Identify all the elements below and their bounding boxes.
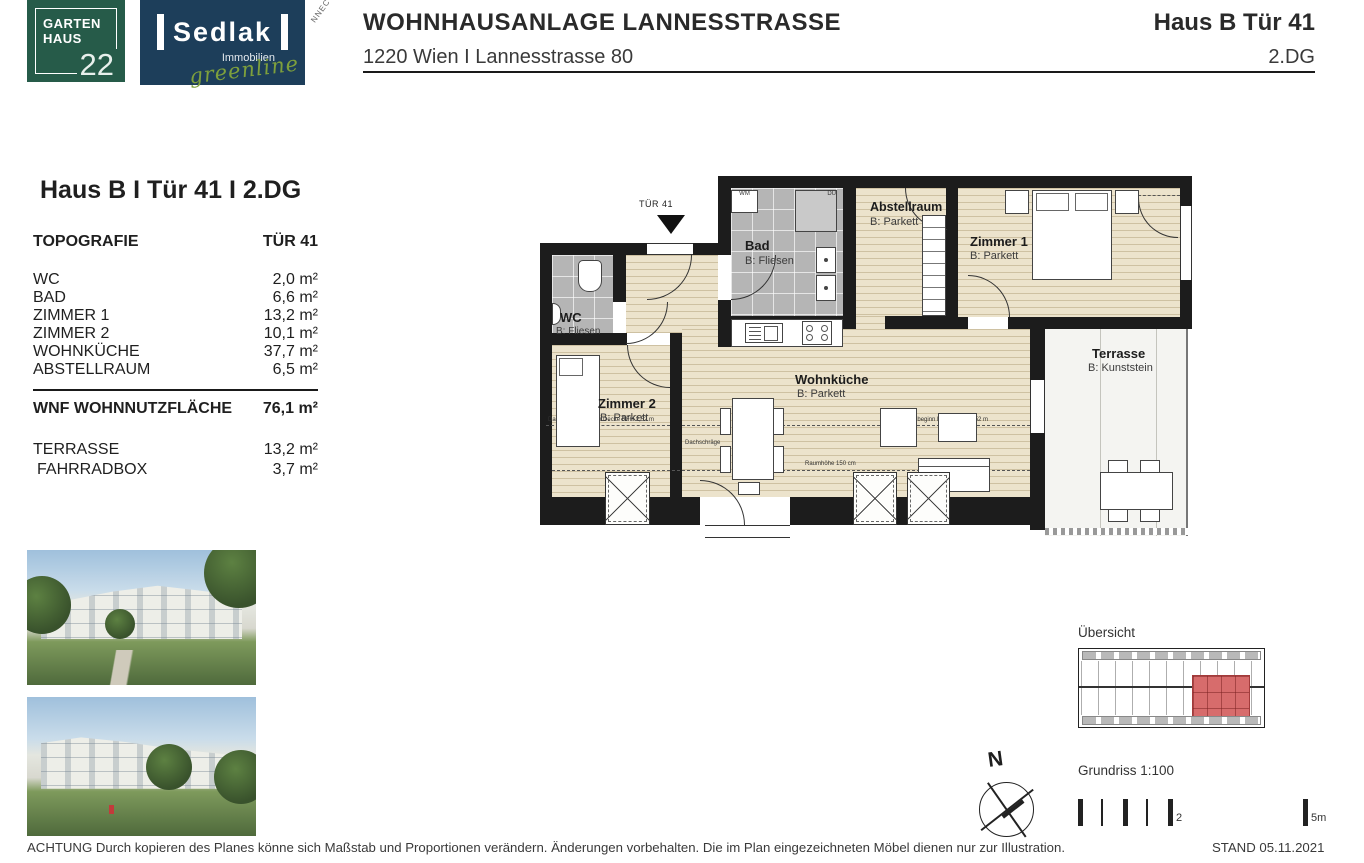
entry-door-sill xyxy=(647,243,693,255)
chair xyxy=(720,408,731,435)
wc-door-arc xyxy=(626,302,668,344)
stand-date: STAND 05.11.2021 xyxy=(1212,840,1324,855)
chair xyxy=(738,482,760,495)
terrace-glass-door xyxy=(1030,380,1045,433)
chair xyxy=(773,446,784,473)
photo-tree xyxy=(146,744,192,790)
panel-heading: Haus B I Tür 41 I 2.DG xyxy=(40,176,301,205)
scale-tick-label: 5m xyxy=(1311,812,1326,824)
annotation: Dachschräge xyxy=(685,440,720,446)
room-label: ABSTELLRAUM xyxy=(33,361,150,379)
extra-area: 3,7 m² xyxy=(273,460,318,480)
room-label: BAD xyxy=(33,289,66,307)
roof-slope-line xyxy=(1138,195,1180,196)
skylight-window xyxy=(605,472,650,525)
corridor-floor xyxy=(856,316,885,329)
dining-table xyxy=(732,398,774,480)
total-label: WNF WOHNNUTZFLÄCHE xyxy=(33,400,232,418)
room-label: ZIMMER 2 xyxy=(33,325,109,343)
room-name: Bad xyxy=(745,238,770,253)
wall xyxy=(670,333,682,497)
table-divider xyxy=(33,389,318,391)
wall xyxy=(1180,280,1192,322)
bad-sink xyxy=(816,247,836,273)
room-label: ZIMMER 1 xyxy=(33,307,109,325)
sedlak-logo: Sedlak Immobilien greenline xyxy=(140,0,305,85)
extra-label: FAHRRADBOX xyxy=(33,460,147,480)
logo-text: Sedlak xyxy=(173,17,272,48)
scale-label: Grundriss 1:100 xyxy=(1078,763,1174,778)
single-bed xyxy=(556,355,600,447)
logo-bar xyxy=(157,14,164,50)
terrace-edge-hatch xyxy=(1045,528,1188,535)
room-label: WC xyxy=(33,271,60,289)
shower: DU xyxy=(795,190,837,232)
table-total-row: WNF WOHNNUTZFLÄCHE76,1 m² xyxy=(33,400,318,418)
room-floor-type: B: Parkett xyxy=(870,216,918,228)
room-name: WC xyxy=(560,310,582,325)
terrace-chair xyxy=(1140,509,1160,522)
washing-machine: WM xyxy=(731,190,758,213)
room-label: WOHNKÜCHE xyxy=(33,343,140,361)
table-row: WOHNKÜCHE37,7 m² xyxy=(33,343,318,361)
logo-bar xyxy=(281,14,288,50)
extra-area: 13,2 m² xyxy=(264,440,318,460)
wall xyxy=(1008,317,1192,329)
north-compass: N xyxy=(978,748,1038,840)
logo-text: GARTEN xyxy=(41,16,103,31)
scale-tick xyxy=(1123,799,1128,826)
wall xyxy=(1030,329,1045,380)
room-area: 6,5 m² xyxy=(273,361,318,379)
wall xyxy=(540,243,647,255)
table-row: ZIMMER 210,1 m² xyxy=(33,325,318,343)
wall xyxy=(843,188,856,329)
scale-tick xyxy=(1078,799,1083,826)
table-row: ZIMMER 113,2 m² xyxy=(33,307,318,325)
table-row: FAHRRADBOX3,7 m² xyxy=(33,460,318,480)
nightstand xyxy=(1005,190,1029,214)
scale-tick xyxy=(1101,799,1103,826)
wall xyxy=(718,176,1192,188)
page-title: WOHNHAUSANLAGE LANNESSTRASSE xyxy=(363,9,841,37)
double-bed xyxy=(1032,190,1112,280)
room-floor-type: B: Parkett xyxy=(600,412,648,424)
wall xyxy=(1030,433,1045,530)
logo-text: HAUS xyxy=(41,31,84,46)
skylight-window xyxy=(853,472,897,525)
room-area: 2,0 m² xyxy=(273,271,318,289)
stamp-fragment: NNECT xyxy=(309,0,335,24)
table-header-right: TÜR 41 xyxy=(263,233,318,251)
gartenhaus22-logo: GARTEN HAUS 22 xyxy=(27,0,125,82)
entrance-arrow-icon xyxy=(657,215,685,234)
zimmer1-window xyxy=(1180,206,1192,280)
compass-north-label: N xyxy=(986,747,1004,773)
annotation: Raumhöhe 150 cm xyxy=(805,461,856,467)
wall xyxy=(958,317,968,329)
overview-balconies xyxy=(1082,651,1261,660)
terrace-table xyxy=(1100,472,1173,510)
stove xyxy=(802,321,832,345)
shelf xyxy=(922,215,946,316)
header-divider xyxy=(363,71,1315,73)
entrance-label: TÜR 41 xyxy=(639,199,673,209)
extra-label: TERRASSE xyxy=(33,440,119,460)
unit-floor: 2.DG xyxy=(1268,46,1315,69)
bad-sink xyxy=(816,275,836,301)
table-row: WC2,0 m² xyxy=(33,271,318,289)
photo-path xyxy=(96,650,156,685)
overview-balconies xyxy=(1082,716,1261,725)
greenline-script: greenline xyxy=(188,51,300,88)
overview-map xyxy=(1078,648,1265,728)
disclaimer-text: ACHTUNG Durch kopieren des Planes könne … xyxy=(27,840,1065,855)
scale-tick xyxy=(1303,799,1308,826)
total-area: 76,1 m² xyxy=(263,400,318,418)
wall xyxy=(693,243,718,255)
toilet xyxy=(578,260,602,292)
wall xyxy=(946,188,958,317)
room-floor-type: B: Parkett xyxy=(970,250,1018,262)
room-area: 13,2 m² xyxy=(264,307,318,325)
terrace-chair xyxy=(1108,509,1128,522)
wall xyxy=(613,255,626,302)
compass-circle xyxy=(979,782,1034,837)
scale-tick-label: 2 xyxy=(1176,812,1182,824)
room-name: Zimmer 1 xyxy=(970,234,1028,249)
building-photo-2 xyxy=(27,697,256,836)
scale-tick xyxy=(1168,799,1173,826)
page-subtitle: 1220 Wien I Lannesstrasse 80 xyxy=(363,46,633,69)
room-area: 37,7 m² xyxy=(264,343,318,361)
room-name: Abstellraum xyxy=(870,200,942,214)
room-name: Zimmer 2 xyxy=(598,396,656,411)
nightstand xyxy=(1115,190,1139,214)
room-floor-type: B: Parkett xyxy=(797,388,845,400)
wall xyxy=(540,243,552,525)
table-header-left: TOPOGRAFIE xyxy=(33,233,139,251)
topografie-table: TOPOGRAFIE TÜR 41 WC2,0 m² BAD6,6 m² ZIM… xyxy=(33,233,318,480)
chair xyxy=(773,408,784,435)
table-row: TERRASSE13,2 m² xyxy=(33,440,318,460)
wall xyxy=(885,316,958,329)
room-name: Wohnküche xyxy=(795,372,868,387)
room-floor-type: B: Kunststein xyxy=(1088,362,1153,374)
chair xyxy=(720,446,731,473)
wall xyxy=(843,316,856,329)
armchair xyxy=(880,408,917,447)
wall xyxy=(1180,176,1192,206)
room-area: 6,6 m² xyxy=(273,289,318,307)
kitchen-sink xyxy=(745,323,783,343)
scale-tick xyxy=(1146,799,1148,826)
room-area: 10,1 m² xyxy=(264,325,318,343)
room-name: Terrasse xyxy=(1092,346,1145,361)
room-floor-type: B: Fliesen xyxy=(556,326,600,337)
building-photo-1 xyxy=(27,550,256,685)
skylight-window xyxy=(907,472,950,525)
table-row: ABSTELLRAUM6,5 m² xyxy=(33,361,318,379)
room-floor-type: B: Fliesen xyxy=(745,255,794,267)
floor-plan: TÜR 41 Dachschrägebeginn Decke RFH 2,52 … xyxy=(540,168,1196,550)
balcony-door-sill xyxy=(705,525,790,538)
wall xyxy=(718,188,731,255)
overview-title: Übersicht xyxy=(1078,625,1135,640)
wall xyxy=(718,300,731,347)
logo-number: 22 xyxy=(77,49,117,80)
table-row: BAD6,6 m² xyxy=(33,289,318,307)
photo-person xyxy=(109,805,114,814)
side-table xyxy=(938,413,977,442)
unit-title: Haus B Tür 41 xyxy=(1154,9,1315,37)
